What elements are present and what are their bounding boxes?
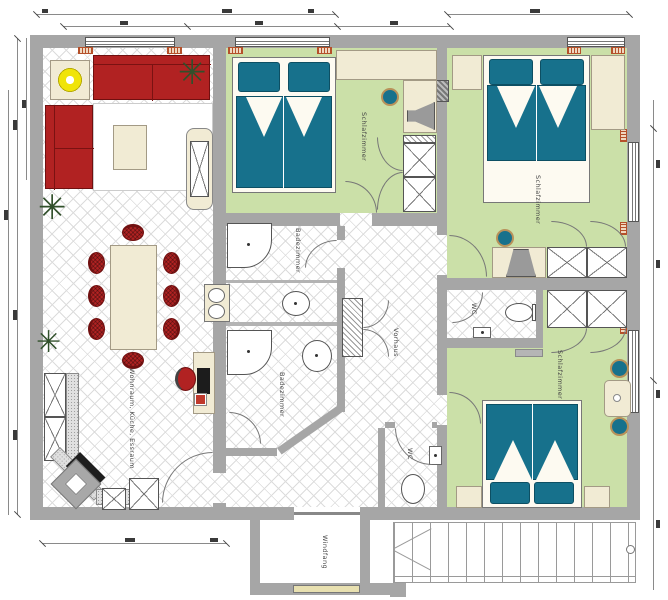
basin-bowl: [208, 304, 225, 319]
shower-drain: [247, 350, 250, 353]
kitchen-cabinet-cell: [44, 373, 66, 417]
bed3-center-line: [532, 404, 533, 480]
room-label-vestibule: Windfang: [321, 535, 329, 569]
toilet: [401, 474, 425, 504]
vestibule-window: [293, 585, 360, 593]
wall-bath2-bottom: [222, 448, 277, 456]
bed1-wardrobe-hatch: [403, 135, 436, 143]
wall-left: [30, 35, 43, 520]
toilet-tank: [532, 304, 536, 321]
sofa-vertical: [45, 105, 93, 189]
dimension-value: [656, 390, 660, 398]
staircase: [393, 522, 636, 583]
dining-chair: [163, 252, 180, 274]
dimension-value: [13, 430, 17, 440]
radiator: [317, 47, 332, 54]
dimension-line: [17, 38, 18, 515]
bed2-pillow: [489, 59, 533, 85]
sofa-back-line: [54, 106, 55, 190]
stair-stringer: [393, 576, 636, 577]
bed3-nightstand: [456, 486, 482, 508]
dimension-line: [8, 90, 9, 515]
dining-chair: [163, 285, 180, 307]
basin-drain: [481, 331, 484, 334]
stool: [610, 417, 629, 436]
room-label-hall: Vorhaus: [392, 328, 400, 357]
bed1-shelf: [336, 50, 437, 80]
room-label-bedroom2: Schlafzimmer: [534, 175, 542, 224]
dimension-value: [656, 520, 660, 528]
dresser-knob: [613, 394, 621, 402]
wall-living-east-c: [213, 503, 226, 507]
dining-chair: [122, 352, 144, 369]
dimension-value: [656, 160, 660, 168]
hall-closet: [342, 298, 363, 357]
room-label-bath1: Badezimmer: [294, 228, 302, 273]
kitchen-island: [129, 478, 159, 510]
armchair-crib: [186, 128, 213, 210]
bed2-pillow: [540, 59, 584, 85]
wall-living-east-a: [213, 48, 226, 285]
window-bedroom1-top: [235, 37, 330, 47]
stair-block: [390, 583, 406, 597]
dimension-line: [26, 38, 27, 180]
sofa-seat-line: [54, 148, 94, 149]
bed1-pillow: [238, 62, 280, 92]
dimension-value: [530, 9, 540, 13]
kitchen-island: [102, 488, 126, 510]
vestibule-wall-right: [360, 520, 370, 583]
basin-bowl: [208, 288, 225, 303]
radiator: [78, 47, 93, 54]
room-label-wc1: WC: [406, 448, 414, 460]
bed2-nightstand: [452, 55, 482, 90]
dimension-line: [653, 100, 654, 590]
stool: [381, 88, 399, 106]
bed3-nightstand: [584, 486, 610, 508]
bed1-wardrobe-cell: [403, 177, 436, 212]
bed1-duvet: [236, 96, 332, 188]
wall-wc1-top-a: [385, 422, 395, 428]
bed1-pillow: [288, 62, 330, 92]
dimension-value: [222, 9, 232, 13]
corridor-closet-cell: [547, 290, 587, 328]
bed1-wardrobe-cell: [403, 143, 436, 177]
dimension-line: [63, 26, 450, 27]
room-label-bedroom1: Schlafzimmer: [360, 112, 368, 161]
bed3-pillow: [490, 482, 530, 504]
desk-item: [195, 394, 206, 405]
coffee-table: [113, 125, 147, 170]
radiator: [228, 47, 243, 54]
wall-spine-c: [437, 425, 447, 507]
wall-bedroom1-bottom-b: [372, 213, 437, 226]
dimension-line: [42, 543, 227, 544]
wall-bedroom2-bottom: [447, 278, 627, 290]
plant-icon: ✳: [178, 56, 207, 90]
window-bedroom2-right: [628, 142, 639, 222]
kitchen-counter-vertical: [66, 373, 79, 461]
bed2-closet-cell: [587, 247, 627, 278]
wall-wc2-bottom: [447, 338, 543, 348]
wall-spine-a: [437, 48, 447, 235]
basin-drain: [434, 454, 437, 457]
dimension-value: [125, 538, 135, 542]
toilet: [505, 303, 533, 322]
bed2-center-line: [536, 85, 537, 161]
computer: [197, 368, 210, 394]
window-living-top: [85, 37, 175, 47]
basin-drain: [315, 354, 318, 357]
dimension-line: [447, 14, 630, 15]
plant-icon: ✳: [36, 328, 61, 358]
floor-plan: ✳ ✳ ✳ Wohnraum, Küche, Essraum: [0, 0, 668, 600]
dining-chair: [88, 252, 105, 274]
dimension-value: [22, 100, 26, 108]
vestibule-door-leaf: [294, 512, 360, 515]
radiator: [611, 47, 625, 54]
room-label-living: Wohnraum, Küche, Essraum: [128, 368, 136, 469]
desk-chair: [175, 367, 196, 391]
radiator: [567, 47, 581, 54]
dimension-value: [4, 210, 8, 220]
room-label-wc2: WC: [470, 303, 478, 315]
dimension-value: [13, 120, 17, 130]
dimension-value: [656, 260, 660, 268]
corridor-closet-cell: [587, 290, 627, 328]
wall-wc1-top-b: [432, 422, 437, 428]
dimension-value: [120, 21, 128, 25]
crib-cross: [190, 141, 209, 197]
shower-drain: [247, 243, 250, 246]
wall-spine-b: [437, 275, 447, 395]
dining-chair: [163, 318, 180, 340]
room-label-bedroom3: Schlafzimmer: [556, 350, 564, 399]
bed2-shelf: [591, 55, 625, 130]
stair-newel: [626, 545, 635, 554]
dimension-value: [255, 21, 263, 25]
dimension-value: [13, 310, 17, 320]
lamp-icon: [57, 67, 83, 93]
dining-chair: [88, 318, 105, 340]
dimension-value: [390, 21, 398, 25]
sofa-seat-line: [152, 64, 153, 101]
bed3-pillow: [534, 482, 574, 504]
plant-icon: ✳: [38, 191, 67, 225]
stool: [496, 229, 514, 247]
radiator: [620, 129, 627, 142]
partition-bath-mid1: [226, 280, 337, 283]
dimension-line: [36, 14, 336, 15]
bed2-closet-cell: [547, 247, 587, 278]
window-bedroom2-top: [567, 37, 625, 47]
dining-table: [110, 245, 157, 350]
dining-chair: [122, 224, 144, 241]
dimension-value: [210, 538, 218, 542]
wall-right: [627, 35, 640, 520]
basin-drain: [294, 302, 297, 305]
partition-bath-mid2: [226, 322, 337, 326]
dimension-value: [308, 9, 314, 13]
stool: [610, 359, 629, 378]
dimension-value: [42, 9, 48, 13]
dining-chair: [88, 285, 105, 307]
wall-wc1-west: [378, 428, 385, 507]
wall-bath-east-top: [337, 226, 345, 240]
shelf-radiator: [515, 349, 543, 357]
room-label-bath2: Badezimmer: [278, 372, 286, 417]
bed1-center-line: [283, 96, 284, 188]
